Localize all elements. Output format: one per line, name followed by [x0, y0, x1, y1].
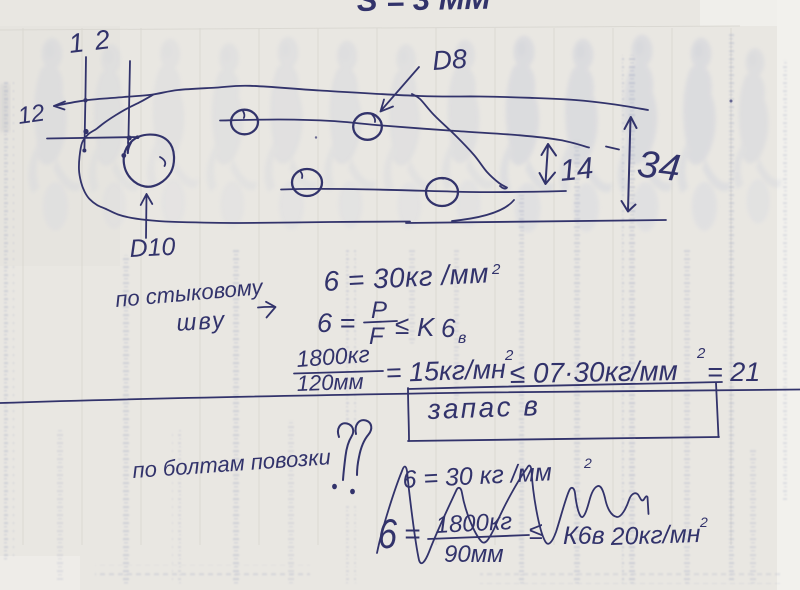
svg-text:12: 12 — [67, 23, 122, 59]
svg-text:12: 12 — [16, 99, 46, 129]
svg-text:34: 34 — [635, 143, 683, 190]
svg-text:2: 2 — [699, 514, 708, 530]
svg-text:шву: шву — [176, 307, 227, 337]
svg-text:P: P — [371, 297, 387, 324]
svg-text:запас в: запас в — [426, 390, 541, 425]
svg-text:20кг/мн: 20кг/мн — [609, 520, 701, 551]
svg-text:D10: D10 — [129, 233, 176, 263]
svg-text:6: 6 — [378, 510, 398, 557]
svg-text:6 =: 6 = — [317, 308, 355, 338]
svg-text:2: 2 — [583, 455, 592, 471]
svg-text:≤: ≤ — [529, 517, 543, 545]
svg-text:90мм: 90мм — [444, 541, 504, 568]
svg-text:К6в: К6в — [563, 522, 605, 550]
svg-text:1800кг: 1800кг — [435, 508, 513, 539]
svg-text:≤ 07·30кг/мм: ≤ 07·30кг/мм — [510, 355, 678, 389]
svg-text:K: K — [417, 312, 436, 342]
svg-text:D8: D8 — [431, 44, 468, 76]
svg-text:F: F — [369, 323, 385, 350]
svg-text:≤: ≤ — [395, 310, 409, 340]
svg-text:=: = — [404, 518, 420, 549]
svg-text:в: в — [458, 330, 466, 347]
svg-text:6: 6 — [441, 313, 456, 343]
svg-text:1800кг: 1800кг — [296, 341, 371, 372]
svg-text:2: 2 — [491, 261, 501, 278]
svg-text:= 21: = 21 — [707, 357, 760, 387]
svg-text:120мм: 120мм — [296, 369, 364, 396]
svg-text:14: 14 — [558, 152, 595, 188]
svg-text:S = 3 ММ: S = 3 ММ — [357, 0, 492, 18]
svg-text:= 15кг/мн: = 15кг/мн — [385, 354, 506, 388]
svg-text:2: 2 — [696, 345, 706, 362]
